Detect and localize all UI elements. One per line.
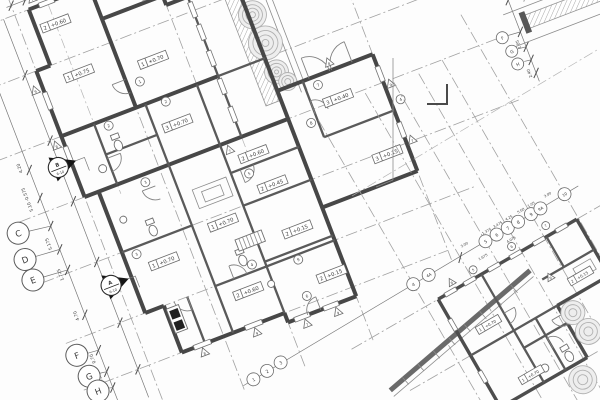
blueprint-sheet: 4.20 5.10 -0.575 5.175 1.725 4.70 0.70 1… <box>0 0 600 400</box>
paper-background <box>0 0 600 400</box>
floor-plan-drawing: 4.20 5.10 -0.575 5.175 1.725 4.70 0.70 1… <box>0 0 600 400</box>
